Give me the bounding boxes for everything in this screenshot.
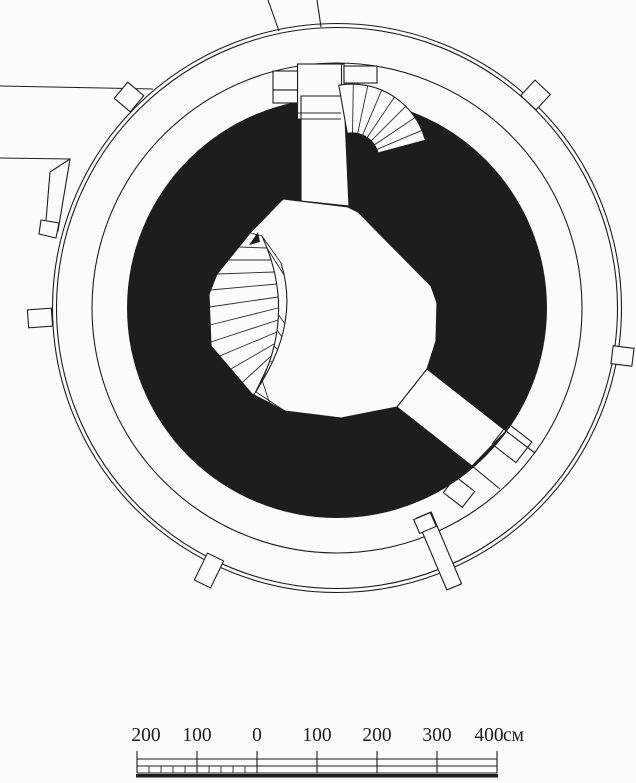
buttress-northwest (114, 82, 144, 112)
entrance-approach-left-line (268, 0, 279, 31)
adjoining-wall-foot (39, 220, 59, 238)
vestibule-left-bay-upper (273, 71, 298, 90)
scale-label-right-400: 400 (474, 725, 503, 746)
entrance-corridor (301, 96, 349, 206)
adjoining-wall-line-lower (0, 158, 70, 159)
buttress-northeast (521, 80, 551, 110)
scale-bar-body (136, 751, 498, 778)
tower-plan-page: 200 100 0 100 200 300 400 см (0, 0, 636, 783)
tower-plan-drawing: 200 100 0 100 200 300 400 см (0, 0, 636, 783)
scale-unit-label: см (503, 725, 524, 746)
scale-label-right-100: 100 (302, 725, 331, 746)
buttress-west (27, 308, 52, 328)
scale-bar-thick-base (136, 774, 498, 778)
vestibule-right-bay (344, 66, 377, 83)
scale-label-zero: 0 (252, 725, 262, 746)
vestibule-left-bay-lower (273, 90, 298, 103)
buttress-southwest (194, 553, 223, 588)
entrance-approach-right-line (317, 0, 321, 27)
scale-label-left-100: 100 (182, 725, 211, 746)
main-wall (127, 64, 547, 518)
scale-label-right-200: 200 (362, 725, 391, 746)
scale-label-left-200: 200 (131, 725, 160, 746)
scale-bar: 200 100 0 100 200 300 400 см (131, 725, 524, 778)
buttress-east (611, 346, 634, 366)
passage-gallery-edge-lower (472, 466, 500, 489)
passage-gallery-edge-upper (506, 431, 535, 453)
scale-label-right-300: 300 (422, 725, 451, 746)
